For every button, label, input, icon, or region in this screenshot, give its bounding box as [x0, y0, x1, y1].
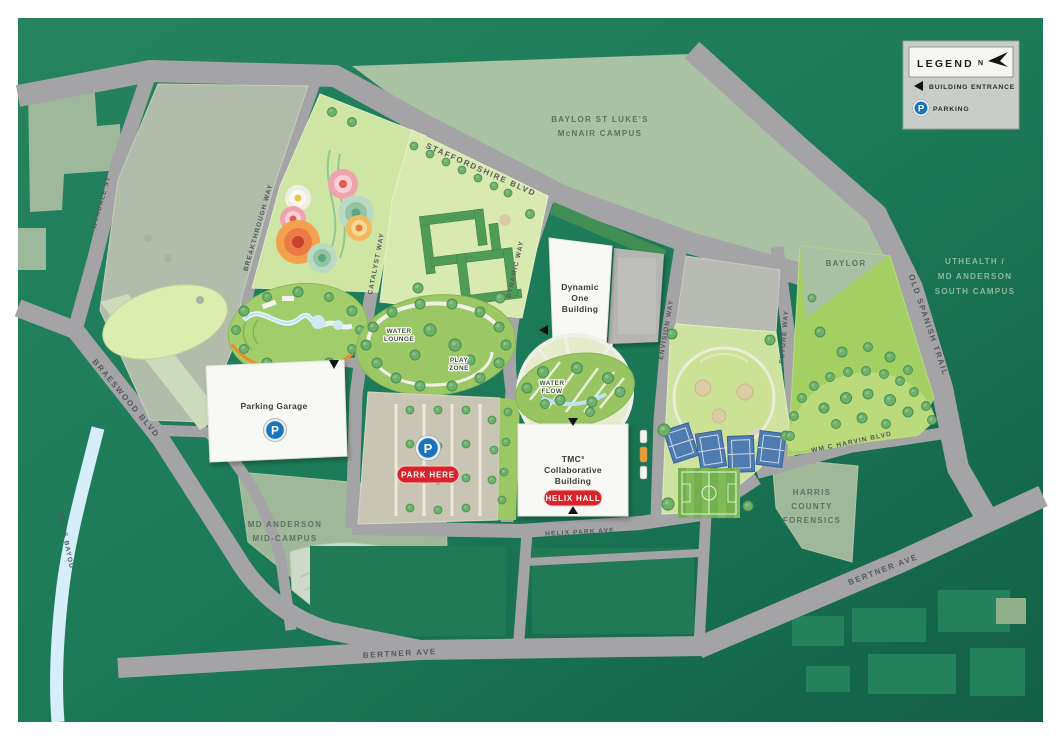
mcnair-campus-label: BAYLOR ST LUKE'S: [551, 115, 649, 124]
water-flow-label: WATER: [540, 380, 565, 387]
svg-text:McNAIR CAMPUS: McNAIR CAMPUS: [558, 129, 642, 138]
water-lounge-label: WATER: [387, 328, 412, 335]
harris-forensics-label: HARRIS: [793, 488, 831, 497]
md-anderson-mid-label: MD ANDERSON: [248, 520, 322, 529]
svg-text:MID-CAMPUS: MID-CAMPUS: [253, 534, 318, 543]
svg-text:P: P: [424, 441, 433, 456]
svg-text:FORENSICS: FORENSICS: [783, 516, 841, 525]
svg-text:FLOW: FLOW: [542, 388, 563, 395]
tmc3-label: TMC³: [562, 454, 584, 464]
shuttle-stop: [640, 430, 647, 479]
legend-title: LEGEND: [917, 58, 974, 70]
svg-text:Building: Building: [555, 476, 591, 486]
soccer-field: [678, 468, 740, 518]
park-here-badge: PARK HERE: [397, 466, 459, 483]
play-zone-label: PLAY: [450, 357, 469, 364]
svg-text:ZONE: ZONE: [449, 365, 469, 372]
building-entrance-label: BUILDING ENTRANCE: [929, 84, 1015, 91]
svg-text:Building: Building: [562, 304, 598, 314]
svg-text:COUNTY: COUNTY: [791, 502, 833, 511]
svg-text:P: P: [271, 424, 279, 438]
road-minor-v2: [699, 515, 706, 645]
dynamic-one-label: Dynamic: [561, 282, 599, 292]
parking-legend-icon: P: [913, 100, 930, 117]
helix-park-map: Parking Garage P: [0, 0, 1061, 740]
parking-icon-lot: P: [416, 436, 441, 461]
svg-text:P: P: [918, 104, 925, 115]
parking-garage-label: Parking Garage: [240, 401, 307, 411]
svg-text:PARK HERE: PARK HERE: [401, 471, 455, 480]
helix-hall-badge: HELIX HALL: [544, 490, 602, 506]
parking-label: PARKING: [933, 106, 969, 113]
parking-icon: P: [264, 419, 287, 442]
svg-text:One: One: [571, 293, 588, 303]
svg-text:SOUTH CAMPUS: SOUTH CAMPUS: [935, 287, 1016, 296]
svg-text:MD ANDERSON: MD ANDERSON: [938, 272, 1012, 281]
svg-text:HELIX HALL: HELIX HALL: [545, 494, 600, 503]
legend: LEGEND N BUILDING ENTRANCE P PARKING: [903, 41, 1019, 129]
parking-garage: Parking Garage P: [206, 360, 347, 462]
surface-parking-lot: P PARK HERE: [358, 392, 520, 524]
tmc3-building: TMC³ Collaborative Building HELIX HALL: [518, 418, 628, 516]
uthealth-label: UTHEALTH /: [945, 257, 1005, 266]
north-label: N: [978, 60, 983, 67]
baylor-label: BAYLOR: [826, 259, 867, 268]
svg-text:Collaborative: Collaborative: [544, 465, 602, 475]
svg-text:LOUNGE: LOUNGE: [384, 336, 414, 343]
